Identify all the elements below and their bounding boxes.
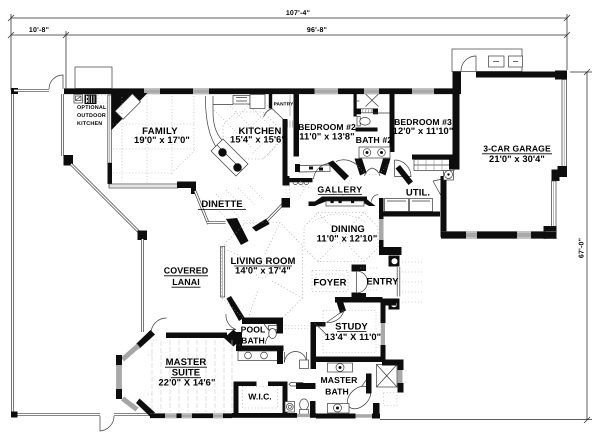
svg-text:BEDROOM #2: BEDROOM #2 xyxy=(298,122,356,132)
svg-text:FOYER: FOYER xyxy=(313,278,346,289)
svg-text:OUTDOOR: OUTDOOR xyxy=(77,113,106,119)
svg-text:96'-8": 96'-8" xyxy=(307,27,327,34)
svg-text:STUDY: STUDY xyxy=(335,322,368,333)
svg-text:MASTER: MASTER xyxy=(166,357,207,368)
svg-text:DINETTE: DINETTE xyxy=(201,199,242,210)
svg-text:BATH #2: BATH #2 xyxy=(356,135,393,145)
svg-text:10'-8": 10'-8" xyxy=(29,27,49,34)
svg-text:21'0" x 30'4": 21'0" x 30'4" xyxy=(489,154,545,164)
svg-text:COVERED: COVERED xyxy=(164,266,209,276)
svg-text:BATH: BATH xyxy=(325,387,349,397)
svg-text:67'-0": 67'-0" xyxy=(579,238,586,258)
svg-text:11'0" x 13'8": 11'0" x 13'8" xyxy=(299,132,354,142)
svg-text:GALLERY: GALLERY xyxy=(317,185,362,195)
svg-text:15'4" x 15'6": 15'4" x 15'6" xyxy=(230,135,286,145)
svg-text:MASTER: MASTER xyxy=(321,375,359,385)
svg-text:OPTIONAL: OPTIONAL xyxy=(77,105,107,111)
svg-text:LANAI: LANAI xyxy=(172,277,200,287)
svg-text:W.I.C.: W.I.C. xyxy=(248,392,271,402)
svg-text:22'0" X 14'6": 22'0" X 14'6" xyxy=(159,378,216,388)
svg-text:BATH: BATH xyxy=(241,336,265,346)
svg-text:POOL: POOL xyxy=(241,325,266,335)
svg-text:19'0" x 17'0": 19'0" x 17'0" xyxy=(134,135,190,145)
svg-text:3-CAR GARAGE: 3-CAR GARAGE xyxy=(483,144,551,154)
svg-text:UTIL.: UTIL. xyxy=(406,188,430,199)
svg-text:12'0" x 11'10": 12'0" x 11'10" xyxy=(393,126,454,136)
svg-text:107'-4": 107'-4" xyxy=(286,10,310,17)
svg-text:ENTRY: ENTRY xyxy=(366,277,399,288)
svg-text:14'0" x 17'4": 14'0" x 17'4" xyxy=(235,266,291,276)
svg-text:PANTRY: PANTRY xyxy=(274,102,294,108)
svg-text:13'4" X 11'0": 13'4" X 11'0" xyxy=(325,332,381,342)
svg-text:11'0" x 12'10": 11'0" x 12'10" xyxy=(317,234,378,244)
svg-text:KITCHEN: KITCHEN xyxy=(77,121,102,127)
